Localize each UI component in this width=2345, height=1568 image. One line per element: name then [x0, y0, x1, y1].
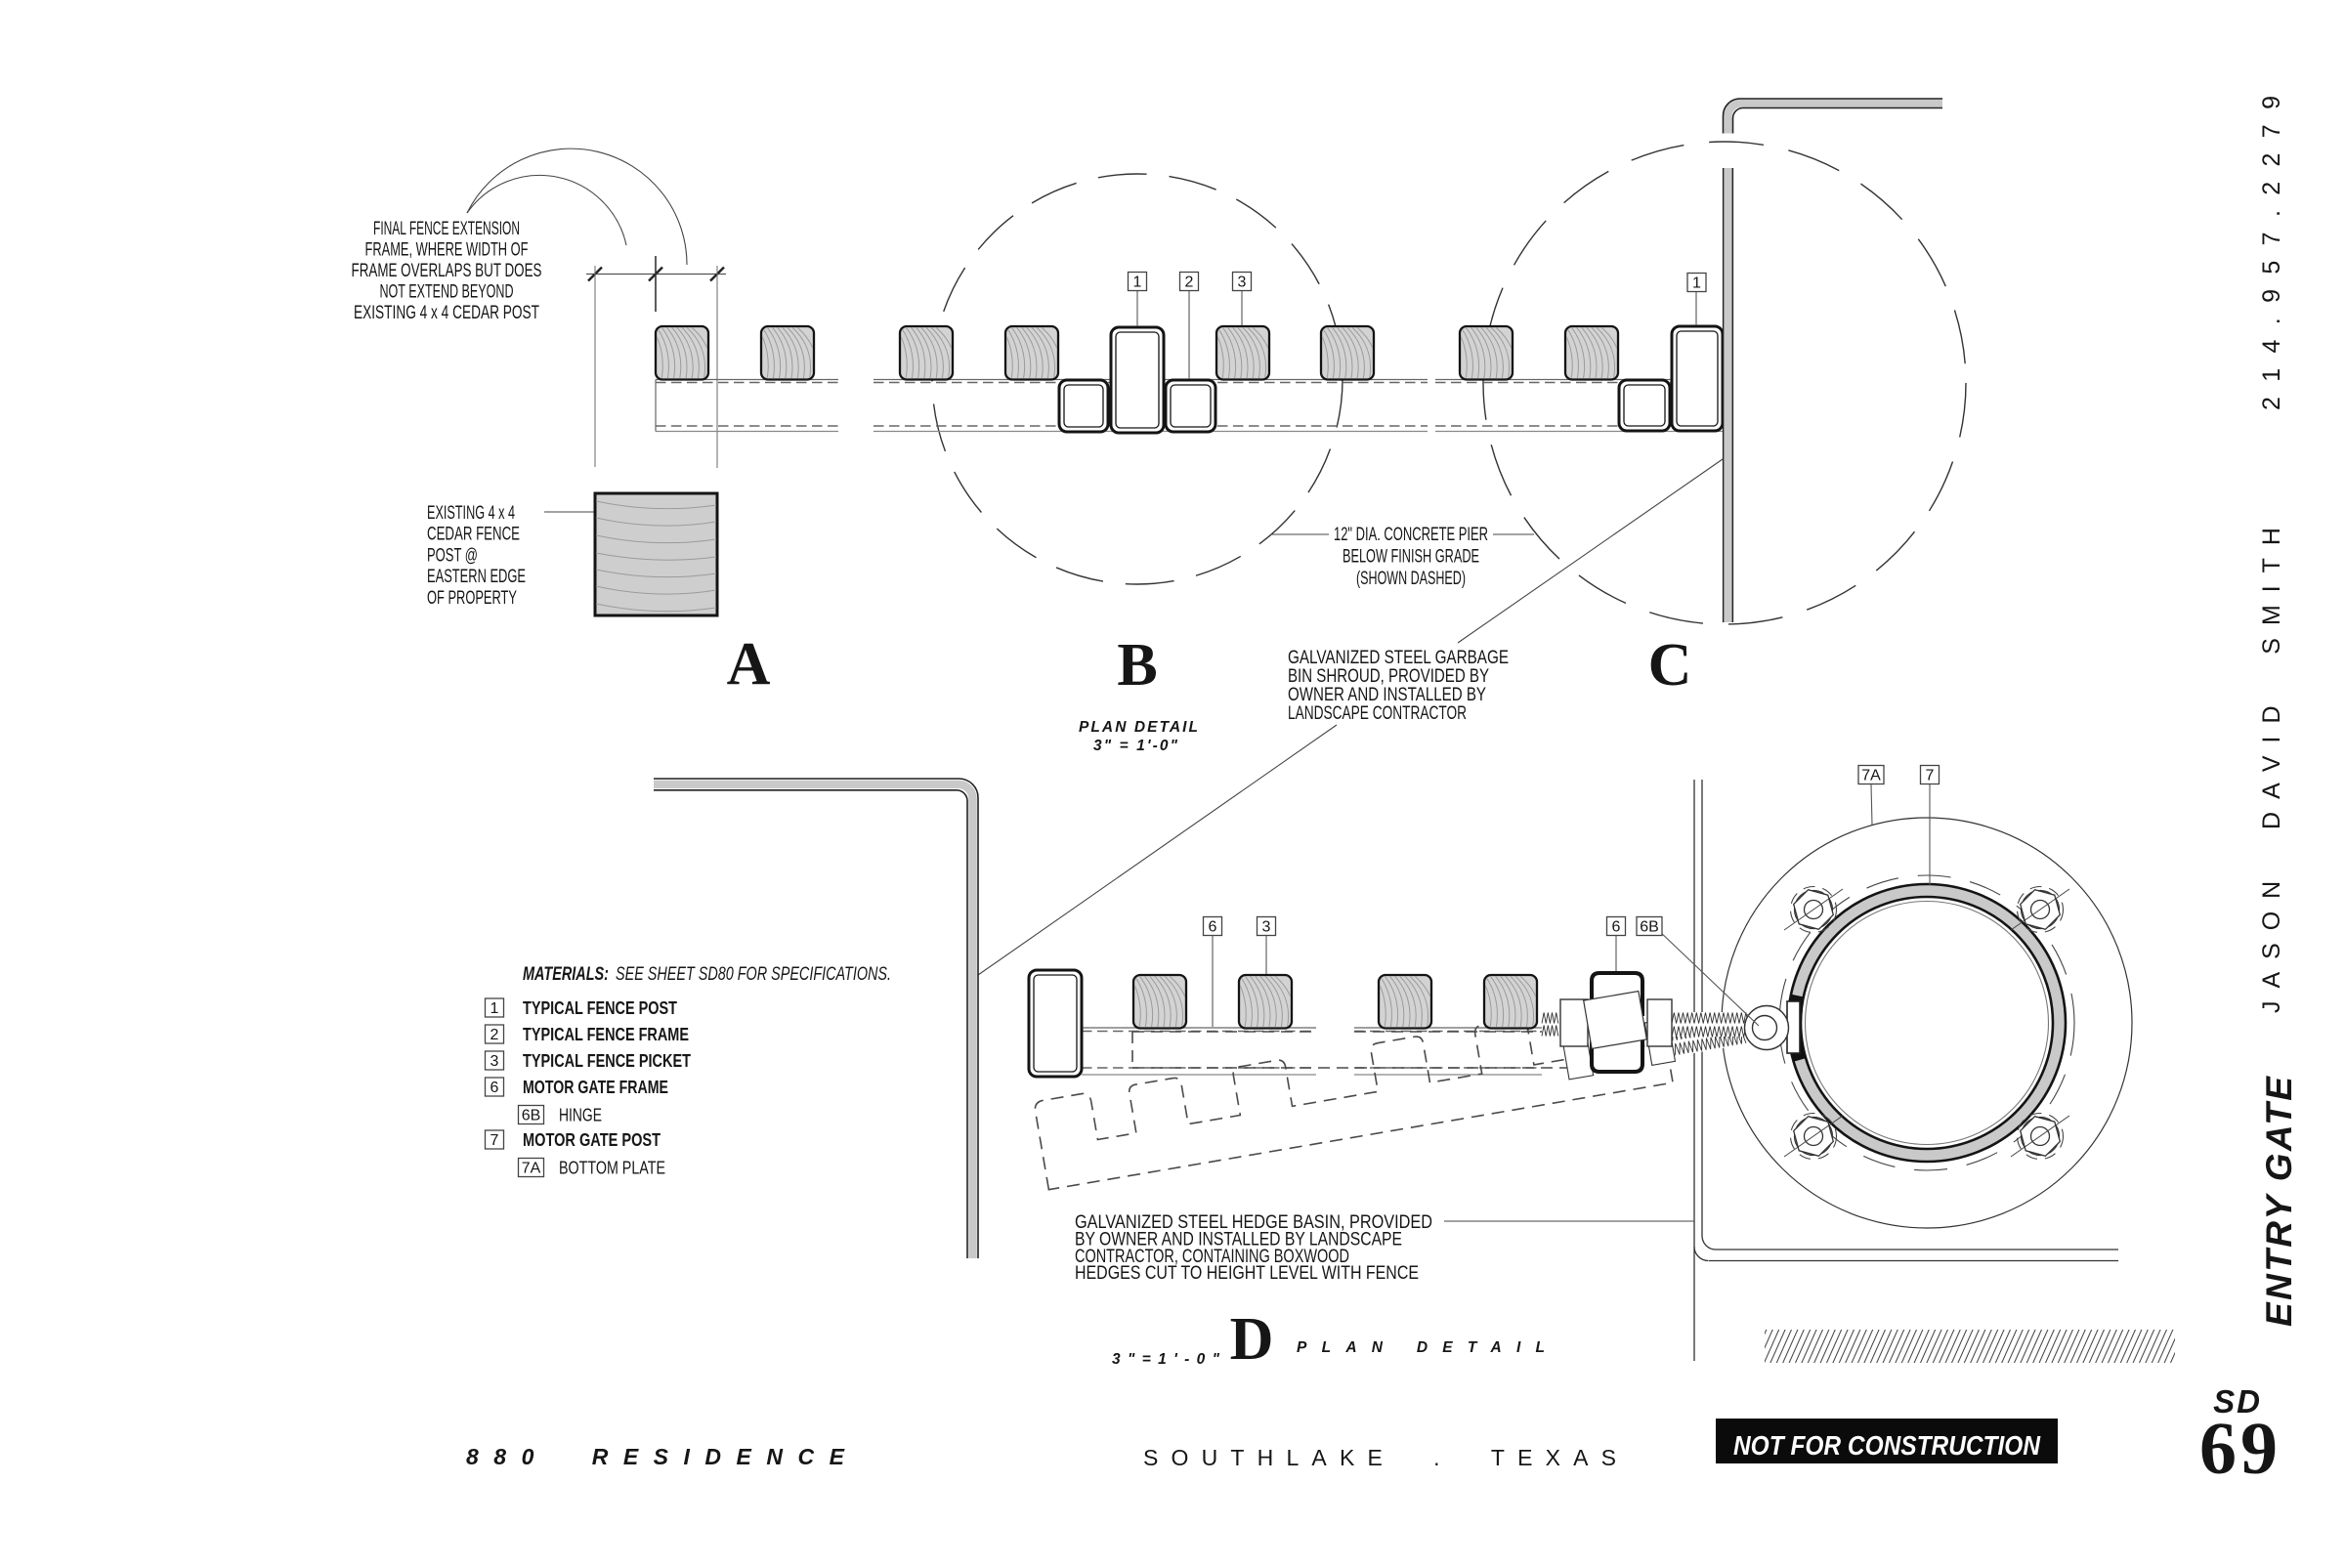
svg-text:7: 7	[1926, 768, 1935, 784]
svg-text:LANDSCAPE CONTRACTOR: LANDSCAPE CONTRACTOR	[1288, 703, 1467, 724]
svg-text:3" = 1'-0": 3" = 1'-0"	[1093, 738, 1178, 754]
svg-text:CEDAR FENCE: CEDAR FENCE	[427, 524, 520, 545]
svg-text:B: B	[1117, 632, 1157, 699]
svg-text:(SHOWN DASHED): (SHOWN DASHED)	[1356, 568, 1466, 589]
svg-text:TYPICAL FENCE FRAME: TYPICAL FENCE FRAME	[523, 1024, 689, 1044]
svg-text:BELOW FINISH GRADE: BELOW FINISH GRADE	[1343, 546, 1479, 568]
svg-text:69: 69	[2199, 1408, 2281, 1490]
svg-text:SOUTHLAKE . TEXAS: SOUTHLAKE . TEXAS	[1143, 1445, 1616, 1470]
svg-text:12" DIA. CONCRETE PIER: 12" DIA. CONCRETE PIER	[1334, 524, 1488, 545]
svg-text:6B: 6B	[1640, 919, 1659, 936]
svg-text:A: A	[727, 631, 771, 698]
svg-text:ENTRY GATE: ENTRY GATE	[2259, 1076, 2299, 1327]
svg-text:FRAME OVERLAPS BUT DOES: FRAME OVERLAPS BUT DOES	[352, 260, 542, 281]
svg-text:TYPICAL FENCE POST: TYPICAL FENCE POST	[523, 997, 678, 1018]
svg-text:EXISTING 4 x 4 CEDAR POST: EXISTING 4 x 4 CEDAR POST	[354, 302, 539, 323]
svg-text:OF PROPERTY: OF PROPERTY	[427, 587, 517, 609]
svg-text:POST @: POST @	[427, 544, 478, 566]
svg-text:MATERIALS:: MATERIALS:	[523, 964, 609, 985]
svg-text:NOT FOR CONSTRUCTION: NOT FOR CONSTRUCTION	[1733, 1430, 2041, 1461]
svg-text:6: 6	[1612, 919, 1621, 936]
svg-text:BIN SHROUD, PROVIDED BY: BIN SHROUD, PROVIDED BY	[1288, 666, 1489, 687]
svg-text:HEDGES CUT TO HEIGHT LEVEL WIT: HEDGES CUT TO HEIGHT LEVEL WITH FENCE	[1075, 1263, 1419, 1284]
svg-text:6B: 6B	[522, 1108, 541, 1124]
svg-text:2: 2	[490, 1027, 499, 1043]
svg-text:SEE SHEET SD80 FOR SPECIFICATI: SEE SHEET SD80 FOR SPECIFICATIONS.	[616, 964, 891, 985]
svg-text:7A: 7A	[1861, 768, 1881, 784]
svg-text:D: D	[1230, 1306, 1274, 1373]
svg-text:MOTOR GATE POST: MOTOR GATE POST	[523, 1129, 661, 1150]
svg-text:TYPICAL FENCE PICKET: TYPICAL FENCE PICKET	[523, 1050, 692, 1071]
svg-text:2: 2	[1185, 275, 1194, 291]
svg-text:3"=1'-0": 3"=1'-0"	[1112, 1351, 1220, 1368]
svg-text:HINGE: HINGE	[559, 1105, 602, 1125]
svg-text:MOTOR GATE FRAME: MOTOR GATE FRAME	[523, 1077, 668, 1097]
svg-text:OWNER AND INSTALLED BY: OWNER AND INSTALLED BY	[1288, 685, 1486, 705]
svg-text:EASTERN EDGE: EASTERN EDGE	[427, 566, 526, 587]
svg-text:7A: 7A	[522, 1161, 541, 1177]
svg-text:PLAN DETAIL: PLAN DETAIL	[1079, 719, 1198, 736]
svg-text:NOT EXTEND BEYOND: NOT EXTEND BEYOND	[380, 281, 514, 303]
svg-text:FRAME, WHERE WIDTH OF: FRAME, WHERE WIDTH OF	[365, 239, 529, 261]
svg-text:3: 3	[490, 1053, 499, 1070]
svg-text:GALVANIZED STEEL GARBAGE: GALVANIZED STEEL GARBAGE	[1288, 648, 1509, 668]
svg-text:EXISTING 4 x 4: EXISTING 4 x 4	[427, 502, 515, 524]
svg-text:6: 6	[1209, 919, 1217, 936]
svg-text:C: C	[1648, 632, 1692, 699]
svg-text:1: 1	[490, 1000, 499, 1017]
svg-text:7: 7	[490, 1132, 499, 1149]
svg-text:BOTTOM PLATE: BOTTOM PLATE	[559, 1158, 665, 1178]
svg-text:3: 3	[1238, 275, 1247, 291]
svg-text:1: 1	[1692, 275, 1701, 292]
svg-text:1: 1	[1133, 275, 1142, 291]
svg-text:3: 3	[1262, 919, 1271, 936]
svg-text:FINAL FENCE EXTENSION: FINAL FENCE EXTENSION	[373, 218, 520, 239]
svg-text:6: 6	[490, 1080, 499, 1096]
